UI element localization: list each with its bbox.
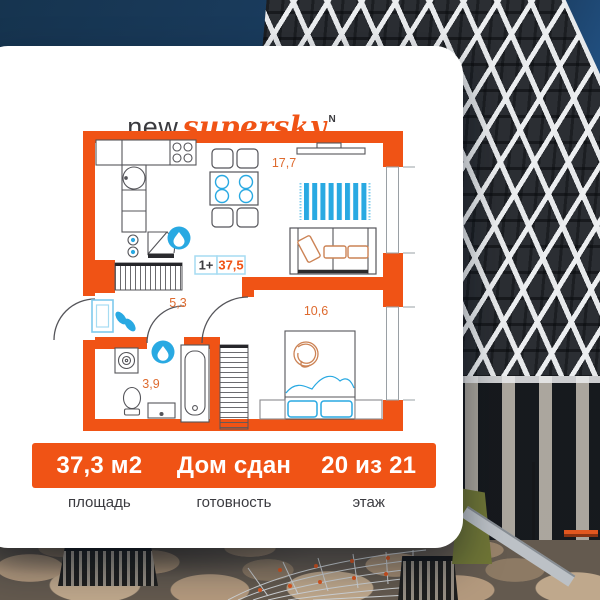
sofa <box>290 228 376 274</box>
bathtub <box>181 345 209 422</box>
stats-labels: площадь готовность этаж <box>32 494 436 512</box>
lamp-post <box>532 462 535 542</box>
stat-floor-value: 20 из 21 <box>321 452 416 479</box>
bathroom-sink <box>148 403 175 418</box>
badge-rooms: 1+ <box>199 258 214 273</box>
door-arcs <box>54 297 248 343</box>
hall-wardrobe <box>115 263 182 290</box>
floor-plan: 17,7 5,3 3,9 10,6 1+ 37,5 <box>44 125 420 435</box>
door-mat <box>92 300 113 332</box>
stats-bar: 37,3 м2 Дом сдан 20 из 21 <box>32 443 436 488</box>
logo-trademark: N <box>328 114 335 125</box>
bedroom-closet <box>220 345 248 429</box>
room-area-hall: 5,3 <box>169 296 186 310</box>
apartment-type-badge: 1+ 37,5 <box>195 256 245 274</box>
badge-total-area: 37,5 <box>218 258 243 273</box>
slippers <box>113 310 138 334</box>
washing-machine <box>115 348 138 373</box>
stat-readiness-value: Дом сдан <box>177 452 291 479</box>
room-area-bedroom: 10,6 <box>304 304 328 318</box>
dining-table <box>210 149 258 227</box>
playground-pillar <box>398 556 458 600</box>
rug <box>301 183 370 220</box>
water-drop-icon <box>152 341 175 364</box>
screenshot-root: new superskyN <box>0 0 600 600</box>
room-area-bath: 3,9 <box>142 377 159 391</box>
playground-pillar <box>58 546 158 586</box>
kitchen-hob-knobs <box>128 235 138 257</box>
bed <box>285 331 355 419</box>
stat-area-label: площадь <box>68 494 131 511</box>
tv-unit <box>297 143 365 154</box>
stat-area-value: 37,3 м2 <box>56 452 142 479</box>
toilet <box>124 388 141 416</box>
kitchen-counter <box>96 140 196 232</box>
listing-card[interactable]: new superskyN <box>0 46 463 548</box>
bench <box>564 530 598 537</box>
climbing-net <box>168 548 428 600</box>
stat-readiness-label: готовность <box>197 494 272 511</box>
water-drop-icon <box>168 227 191 250</box>
stat-floor-label: этаж <box>352 494 384 511</box>
room-area-living: 17,7 <box>272 156 296 170</box>
